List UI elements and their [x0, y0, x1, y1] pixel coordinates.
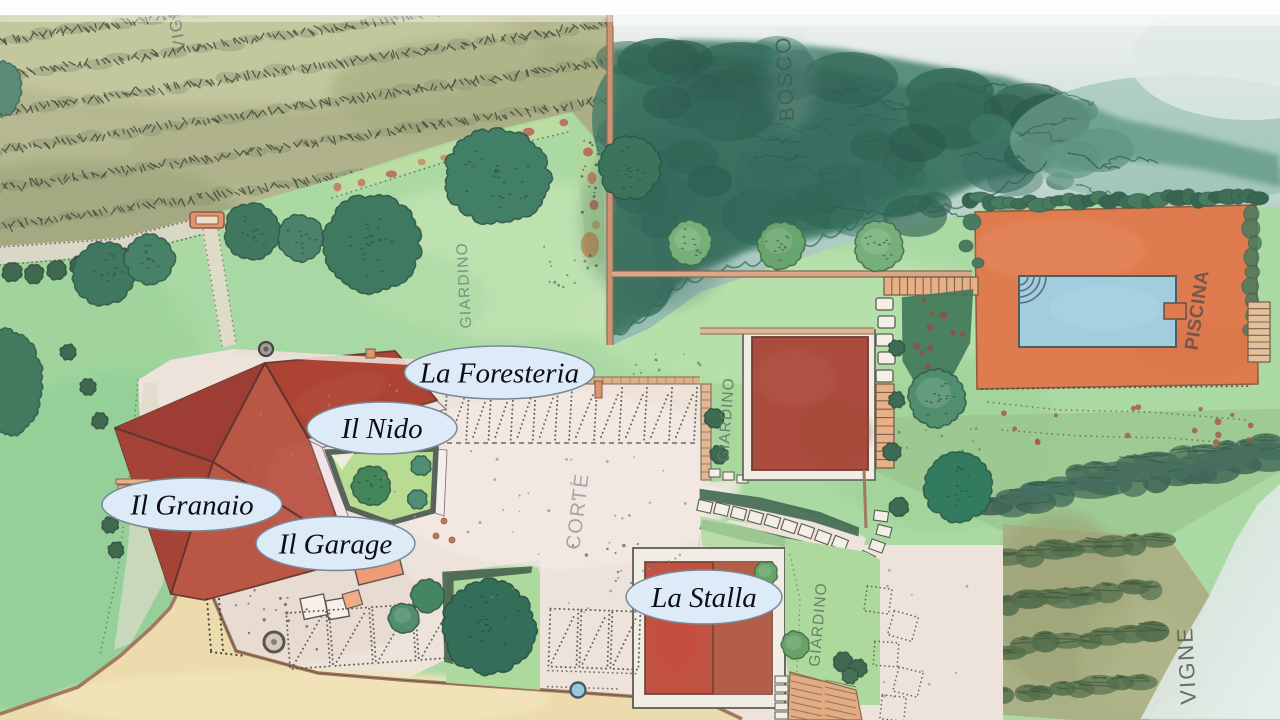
svg-text:La Stalla: La Stalla: [650, 582, 757, 614]
svg-text:Il Nido: Il Nido: [340, 413, 422, 445]
svg-text:Il Granaio: Il Granaio: [129, 489, 253, 521]
svg-text:Il Garage: Il Garage: [278, 528, 393, 560]
svg-text:La Foresteria: La Foresteria: [419, 357, 579, 389]
